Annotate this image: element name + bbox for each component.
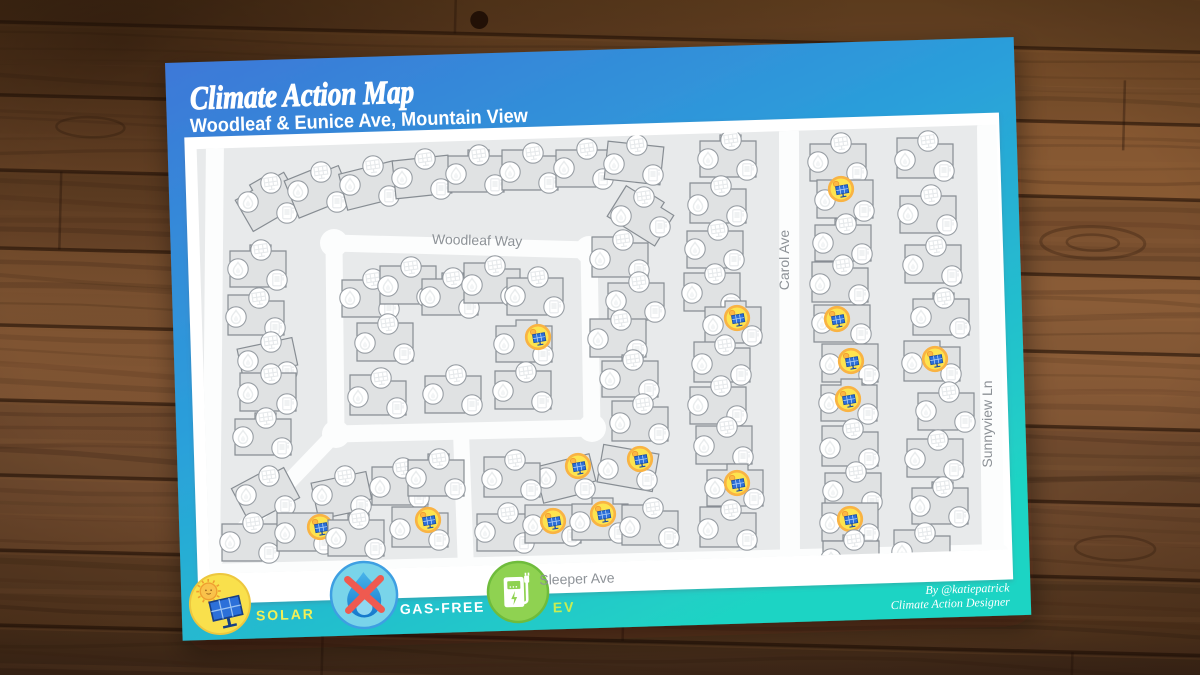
svg-text:Woodleaf Way: Woodleaf Way [432, 231, 523, 249]
svg-text:EV: EV [553, 599, 576, 616]
svg-text:Sunnyview Ln: Sunnyview Ln [979, 380, 995, 467]
svg-text:Carol Ave: Carol Ave [776, 230, 792, 291]
svg-text:Sleeper Ave: Sleeper Ave [539, 570, 615, 588]
svg-text:GAS-FREE: GAS-FREE [400, 598, 486, 617]
svg-text:SOLAR: SOLAR [256, 606, 315, 624]
